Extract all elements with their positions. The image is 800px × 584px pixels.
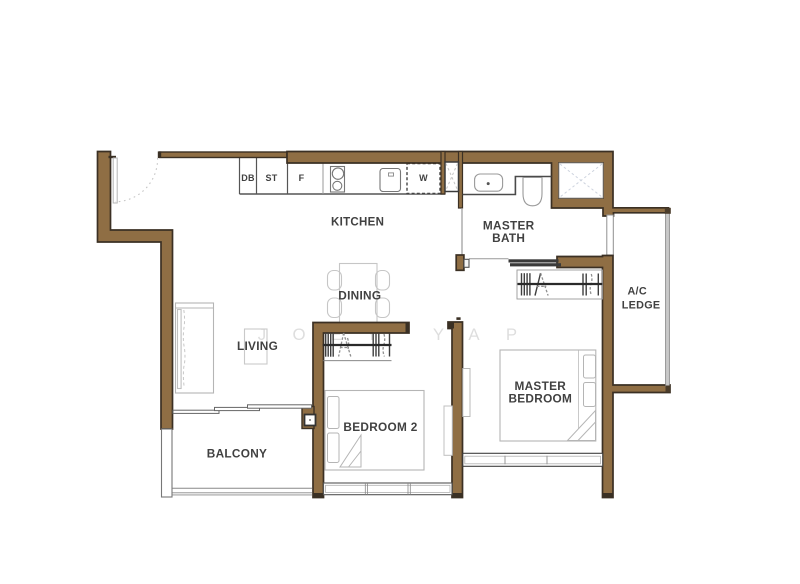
svg-text:A/C: A/C [627, 286, 647, 298]
svg-text:ST: ST [265, 173, 277, 183]
svg-text:O: O [292, 325, 305, 344]
svg-text:BEDROOM: BEDROOM [508, 391, 572, 405]
svg-text:LEDGE: LEDGE [622, 300, 661, 312]
svg-text:BEDROOM 2: BEDROOM 2 [343, 420, 417, 434]
svg-text:LIVING: LIVING [237, 339, 278, 353]
svg-text:Y: Y [433, 325, 444, 344]
svg-text:DINING: DINING [338, 288, 381, 302]
svg-text:BALCONY: BALCONY [207, 447, 267, 461]
svg-text:DB: DB [241, 173, 255, 183]
svg-text:P: P [506, 325, 517, 344]
svg-text:W: W [419, 173, 428, 183]
svg-text:BATH: BATH [492, 231, 525, 245]
svg-text:A: A [468, 325, 480, 344]
svg-text:F: F [299, 173, 305, 183]
svg-text:KITCHEN: KITCHEN [331, 217, 384, 229]
